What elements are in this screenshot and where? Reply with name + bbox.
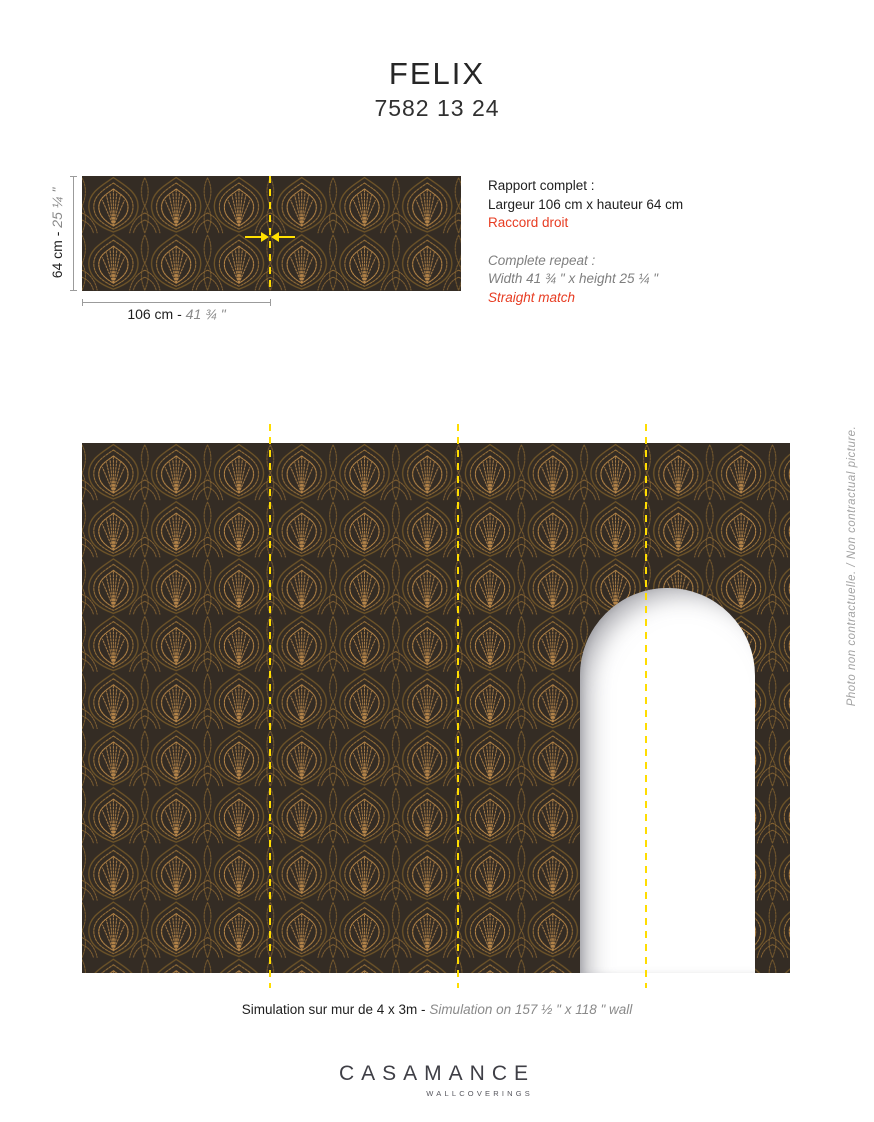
height-dimension-tick-bottom (70, 290, 77, 291)
height-cm-label: 64 cm - (49, 228, 65, 279)
width-inch-label: 41 ¾ " (186, 306, 226, 322)
repeat-arrow-right-icon (279, 236, 295, 238)
width-cm-label: 106 cm - (127, 306, 185, 322)
width-dimension-line (82, 302, 271, 303)
repeat-title-fr: Rapport complet : (488, 177, 683, 196)
panel-seam-line-3 (645, 424, 647, 988)
repeat-spec-block: Rapport complet : Largeur 106 cm x haute… (488, 177, 683, 307)
repeat-size-en: Width 41 ¾ " x height 25 ¼ " (488, 270, 683, 289)
simulation-caption-en: Simulation on 157 ½ " x 118 " wall (429, 1002, 632, 1017)
panel-seam-line-1 (269, 424, 271, 988)
brand-division: WALLCOVERINGS (339, 1089, 535, 1098)
width-dimension-tick-right (270, 299, 271, 306)
panel-seam-line-2 (457, 424, 459, 988)
brand-logo-inner: CASAMANCE WALLCOVERINGS (339, 1062, 535, 1098)
simulation-caption: Simulation sur mur de 4 x 3m - Simulatio… (0, 1002, 874, 1017)
simulation-caption-fr: Simulation sur mur de 4 x 3m - (242, 1002, 430, 1017)
repeat-match-en: Straight match (488, 289, 683, 308)
page-title: FELIX (0, 56, 874, 92)
height-dimension-label: 64 cm - 25 ¼ " (49, 188, 65, 279)
product-reference: 7582 13 24 (0, 95, 874, 122)
repeat-title-en: Complete repeat : (488, 252, 683, 271)
wall-simulation-figure (82, 443, 790, 973)
photo-disclaimer: Photo non contractuelle. / Non contractu… (846, 426, 858, 707)
brand-logo: CASAMANCE WALLCOVERINGS (0, 1062, 874, 1101)
repeat-size-fr: Largeur 106 cm x hauteur 64 cm (488, 196, 683, 215)
repeat-spec-block-en: Complete repeat : Width 41 ¾ " x height … (488, 252, 683, 308)
arch-door-opening (580, 588, 755, 973)
height-dimension-line (73, 176, 74, 291)
repeat-arrow-left-icon (245, 236, 261, 238)
height-dimension-tick-top (70, 176, 77, 177)
width-dimension-label: 106 cm - 41 ¾ " (82, 306, 271, 322)
product-sheet-page: FELIX 7582 13 24 (0, 0, 874, 1122)
width-dimension-tick-left (82, 299, 83, 306)
repeat-match-fr: Raccord droit (488, 214, 683, 233)
brand-name: CASAMANCE (339, 1062, 535, 1086)
height-inch-label: 25 ¼ " (49, 188, 65, 228)
